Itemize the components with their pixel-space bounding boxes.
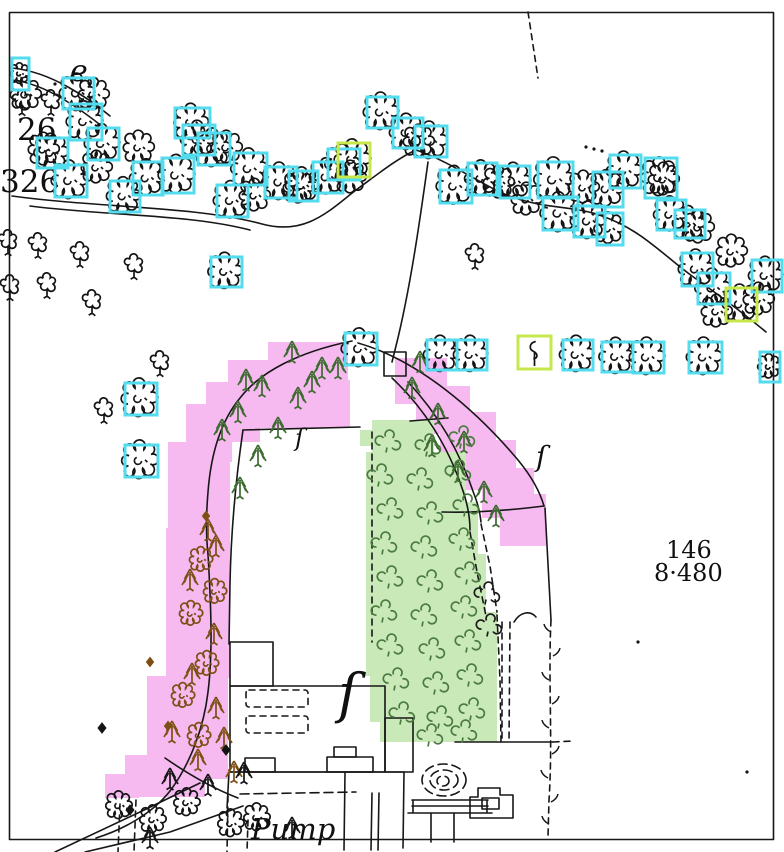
stipple-dot xyxy=(592,147,595,150)
map-canvas: e263261468·480Pumpſſſ xyxy=(0,0,784,852)
map-label-area-8-480: 8·480 xyxy=(654,559,723,587)
pink-region-cell xyxy=(147,676,228,762)
outbuilding xyxy=(230,642,273,686)
stipple-dot xyxy=(53,82,56,85)
baretree-tree-glyph xyxy=(530,342,537,366)
broadleaf-tree-glyph xyxy=(123,130,154,163)
scribble-tree-ring xyxy=(422,764,466,796)
region-mask-overlays xyxy=(105,342,546,798)
double-dash-boundary xyxy=(502,622,510,742)
platform-structure xyxy=(408,800,492,842)
diamond-tree-glyph xyxy=(147,658,153,666)
stipple-dot xyxy=(584,145,587,148)
smalltree-tree-glyph xyxy=(82,290,100,316)
pump-house-roof xyxy=(334,747,356,757)
fence-line xyxy=(229,430,243,644)
stipple-dot xyxy=(591,212,594,215)
smalltree-tree-glyph xyxy=(28,233,46,259)
green-region-cell xyxy=(370,676,497,722)
stipple-dot xyxy=(636,640,639,643)
scribble-tree-ring xyxy=(437,776,449,786)
smalltree-tree-glyph xyxy=(70,242,88,268)
plot-boundary xyxy=(545,508,551,620)
hedge-tick xyxy=(541,770,548,778)
building-detail xyxy=(245,758,275,772)
hedge-tick xyxy=(552,746,559,754)
smalltree-tree-glyph xyxy=(124,254,142,280)
hedge-tick xyxy=(542,720,549,728)
hedge-tick xyxy=(551,794,558,802)
open-shed xyxy=(246,716,308,733)
scribble-tree-ring xyxy=(430,770,458,790)
open-shed xyxy=(246,690,308,707)
plot-line-dash xyxy=(553,741,574,742)
smalltree-tree-glyph xyxy=(94,398,112,424)
pink-region-cell xyxy=(168,442,230,530)
broadleaf-tree-glyph xyxy=(403,124,434,157)
brace-symbol: ſ xyxy=(334,662,366,725)
hedge-tick xyxy=(542,672,549,680)
stipple-dot xyxy=(745,770,748,773)
smalltree-tree-glyph xyxy=(150,351,168,377)
map-label-pump: Pump xyxy=(250,812,335,846)
hedge-tick xyxy=(552,696,559,704)
pump-house xyxy=(327,757,373,772)
lane-dash xyxy=(240,792,356,794)
broadleaf-tree-glyph xyxy=(716,234,747,267)
smalltree-tree-glyph xyxy=(0,230,16,256)
diamond-tree-glyph xyxy=(99,724,106,733)
field-path xyxy=(392,162,428,362)
map-label-letter-e: e xyxy=(70,54,88,89)
boundary-dash xyxy=(528,12,538,78)
conifer-tree-glyph xyxy=(236,762,252,784)
smalltree-tree-glyph xyxy=(465,244,483,270)
green-region-cell xyxy=(360,430,372,446)
broadleaf-tree-glyph xyxy=(678,249,714,286)
conifer-tree-glyph xyxy=(250,445,266,467)
hedge-tick xyxy=(544,624,551,632)
brace-symbol: ſ xyxy=(534,440,551,473)
hedge-tick xyxy=(553,648,560,656)
stipple-dot xyxy=(600,149,603,152)
smalltree-tree-glyph xyxy=(37,273,55,299)
pink-region-cell xyxy=(500,494,546,546)
annotated-map-svg: e263261468·480Pumpſſſ xyxy=(0,0,784,852)
boundary-hook xyxy=(514,613,536,622)
